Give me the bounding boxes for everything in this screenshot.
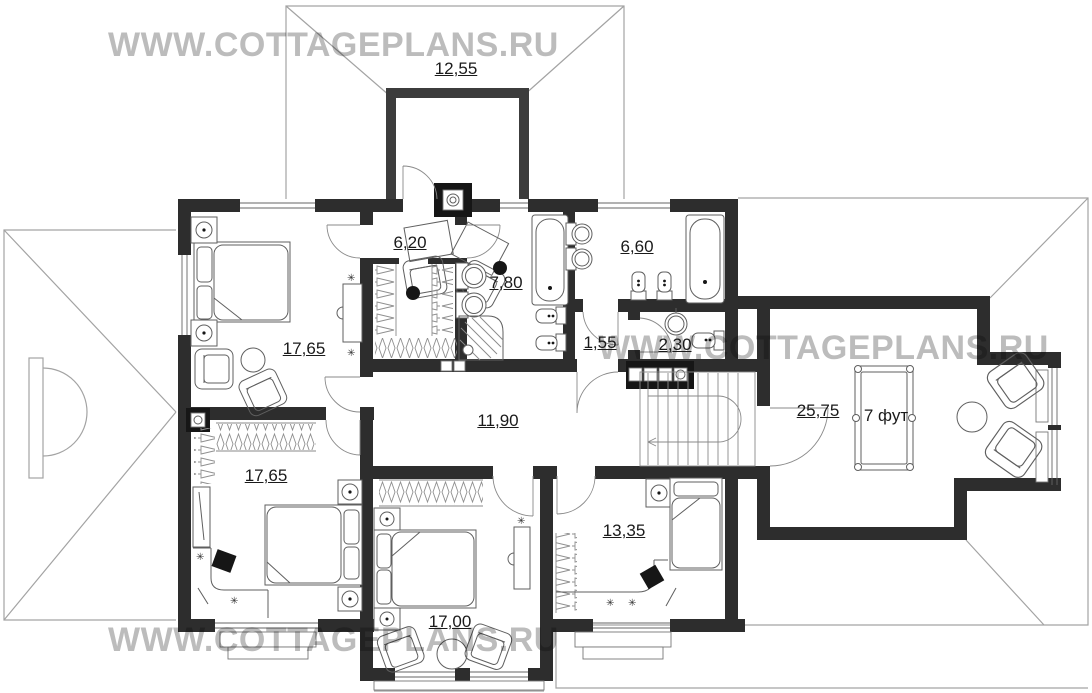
hangers-icon: [375, 264, 396, 336]
room-area-label-hallway-small: 1,55: [583, 334, 616, 353]
watermark-bottom: WWW.COTTAGEPLANS.RU: [108, 621, 559, 660]
desk-icon: ✳: [508, 516, 530, 589]
plant-icon: [406, 286, 420, 300]
nightstand-icon: [338, 480, 362, 504]
toilet-icon: [536, 307, 566, 324]
svg-text:✳: ✳: [517, 516, 525, 527]
hangers-icon: [556, 533, 577, 613]
svg-text:✳: ✳: [606, 598, 614, 609]
toilet-icon: [536, 334, 566, 351]
svg-text:✳: ✳: [347, 348, 355, 359]
room-area-label-hall: 11,90: [477, 412, 518, 431]
hangers-icon: [216, 424, 316, 450]
entry-step: [575, 632, 671, 647]
entry-step: [583, 647, 663, 659]
room-area-label-bathroom-second: 6,60: [620, 238, 653, 257]
double-bed-icon: [194, 242, 290, 322]
svg-text:✳: ✳: [347, 273, 355, 284]
hangers-icon: [194, 428, 215, 484]
furniture-bedroom-bottom-left: ✳ ✳: [193, 423, 362, 618]
room-area-label-bedroom-bottom-middle: 17,00: [429, 613, 472, 632]
toilet-icon: [657, 272, 672, 300]
sink-icon: [566, 223, 592, 245]
double-bed-icon: [374, 530, 476, 608]
shoe-rack-icon: [375, 338, 457, 358]
roof-outline-left: [4, 230, 176, 620]
room-area-label-bedroom-bottom-right: 13,35: [603, 522, 646, 541]
armchair-icon: [195, 349, 233, 389]
sink-icon: [566, 248, 592, 270]
svg-text:✳: ✳: [230, 596, 238, 607]
round-table-icon: [957, 402, 987, 432]
bathtub-icon: [686, 215, 724, 303]
nightstand-icon: [191, 217, 217, 243]
gable-window-icon: [29, 358, 43, 478]
sink-icon: [456, 263, 486, 289]
sink-icon: [456, 292, 486, 318]
entry-step: [374, 681, 544, 690]
svg-text:✳: ✳: [628, 598, 636, 609]
desk-icon: ✳: [193, 487, 210, 563]
room-area-label-wc: 2,30: [658, 336, 691, 355]
room-area-label-balcony: 12,55: [435, 60, 478, 79]
balcony-walls: [386, 88, 529, 199]
furniture-bathroom-second: [566, 215, 724, 303]
dresser-icon: ✳✳: [337, 273, 362, 359]
room-area-label-bedroom-top-left: 17,65: [283, 340, 326, 359]
nightstand-icon: [374, 508, 400, 530]
hangers-icon: [379, 481, 483, 505]
nightstand-icon: [338, 587, 362, 611]
double-bed-icon: [265, 505, 362, 585]
room-area-label-bedroom-bottom-left: 17,65: [245, 467, 288, 486]
furniture-closet: [375, 264, 457, 358]
round-table-icon: [241, 348, 265, 372]
watermark-top: WWW.COTTAGEPLANS.RU: [108, 26, 559, 65]
hangers-icon: [432, 264, 453, 336]
billiard-table-size-label: 7 фут: [864, 406, 908, 426]
furniture-bedroom-bottom-right: ✳✳: [556, 478, 722, 613]
floor-plan-page: ✳✳: [0, 0, 1092, 693]
furniture-bedroom-top-left: ✳✳: [191, 217, 362, 418]
single-bed-icon: [670, 478, 722, 570]
nightstand-icon: [191, 320, 217, 346]
room-area-label-billiard-room: 25,75: [797, 402, 840, 421]
room-area-label-vestibule: 6,20: [393, 234, 426, 253]
nightstand-icon: [646, 479, 672, 507]
bathtub-icon: [532, 215, 568, 305]
toilet-icon: [631, 272, 646, 300]
svg-text:✳: ✳: [196, 552, 204, 563]
room-area-label-bathroom-main: 7,80: [489, 274, 522, 293]
